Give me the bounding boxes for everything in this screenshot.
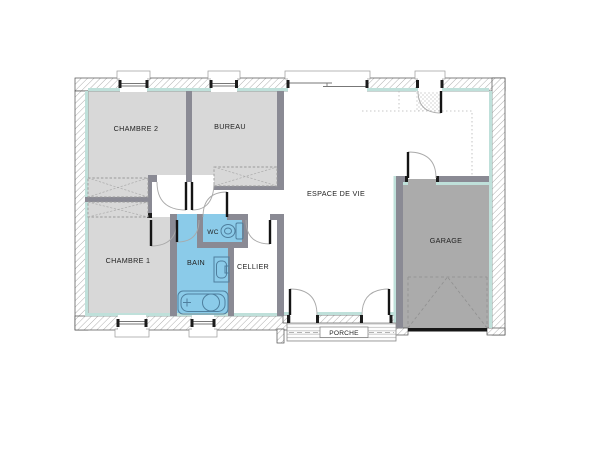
closet-chambre2 <box>88 178 148 197</box>
closet-chambre1 <box>88 202 148 217</box>
closet-bureau <box>214 167 277 186</box>
wall-hall-south-b <box>270 214 284 220</box>
wall-south-main <box>75 316 290 330</box>
label-bureau: BUREAU <box>214 122 246 131</box>
wall-garage-west <box>396 176 403 328</box>
window-bay-espace-de-vie <box>285 71 370 92</box>
wall-chambre2-bureau <box>186 91 192 182</box>
room-garage-floor <box>399 179 489 328</box>
window-chambre2 <box>117 71 150 92</box>
floor-plan: CHAMBRE 2 BUREAU ESPACE DE VIE GARAGE CH… <box>0 0 600 450</box>
wall-cellier-east <box>277 214 284 316</box>
room-chambre2-floor <box>88 91 186 175</box>
room-bureau-floor <box>192 91 277 175</box>
insulation-south <box>85 313 283 316</box>
wall-bureau-east <box>277 91 284 190</box>
label-bain: BAIN <box>187 258 205 267</box>
wall-south-porch-mid <box>317 315 362 323</box>
label-cellier: CELLIER <box>237 262 269 271</box>
wall-east <box>492 78 505 335</box>
porch-left-stub-wall <box>277 329 284 343</box>
room-chambre1-floor <box>88 217 170 313</box>
label-porche: PORCHE <box>329 330 359 337</box>
window-bureau <box>208 71 240 92</box>
insulation-garage-north-b <box>436 182 489 185</box>
wall-wc-south <box>197 242 248 248</box>
label-garage: GARAGE <box>430 236 463 245</box>
window-bain <box>189 315 217 337</box>
window-chambre1 <box>115 315 149 337</box>
label-espace-de-vie: ESPACE DE VIE <box>307 189 365 198</box>
label-wc: WC <box>207 229 218 236</box>
label-chambre2: CHAMBRE 2 <box>114 124 159 133</box>
label-chambre1: CHAMBRE 1 <box>106 256 151 265</box>
wall-south-garage-left <box>395 328 408 335</box>
wall-garage-north-b <box>436 176 489 182</box>
wall-closet-divider <box>85 197 150 202</box>
garage-door-threshold <box>408 328 487 332</box>
insulation-porch-b <box>317 312 362 315</box>
wall-south-garage-right <box>487 328 505 335</box>
insulation-east <box>489 91 492 328</box>
